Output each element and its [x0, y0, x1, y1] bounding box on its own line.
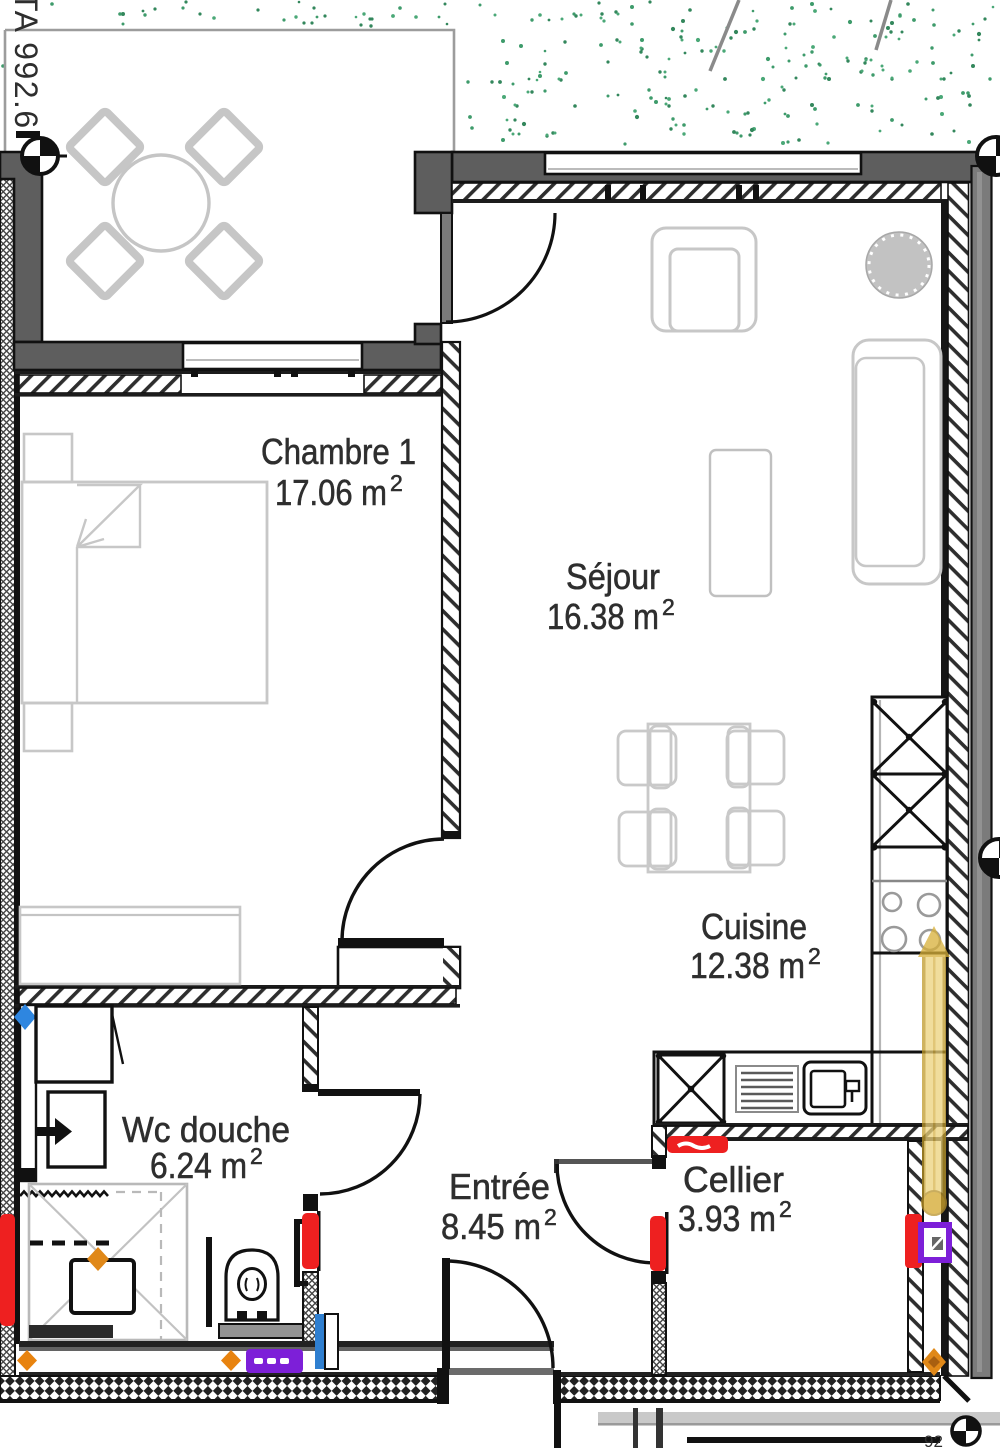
svg-text:92: 92: [924, 1432, 943, 1448]
svg-text:Wc douche: Wc douche: [122, 1109, 290, 1150]
svg-text:2: 2: [808, 943, 821, 969]
svg-text:2: 2: [662, 594, 675, 620]
svg-text:Entrée: Entrée: [449, 1166, 550, 1207]
svg-text:2: 2: [779, 1196, 792, 1222]
svg-text:Cellier: Cellier: [683, 1159, 784, 1200]
svg-text:16.38 m: 16.38 m: [547, 596, 659, 637]
svg-text:8.45 m: 8.45 m: [441, 1206, 541, 1247]
svg-text:TA 992.6: TA 992.6: [8, 0, 44, 130]
svg-text:Séjour: Séjour: [566, 556, 660, 597]
svg-text:6.24 m: 6.24 m: [150, 1145, 247, 1186]
svg-text:2: 2: [390, 470, 403, 496]
svg-text:Cuisine: Cuisine: [701, 906, 807, 947]
svg-text:17.06 m: 17.06 m: [275, 472, 387, 513]
svg-text:2: 2: [250, 1143, 263, 1169]
svg-text:2: 2: [544, 1204, 557, 1230]
svg-text:12.38 m: 12.38 m: [690, 945, 805, 986]
svg-text:3.93 m: 3.93 m: [678, 1198, 776, 1239]
svg-text:Chambre 1: Chambre 1: [261, 431, 416, 472]
